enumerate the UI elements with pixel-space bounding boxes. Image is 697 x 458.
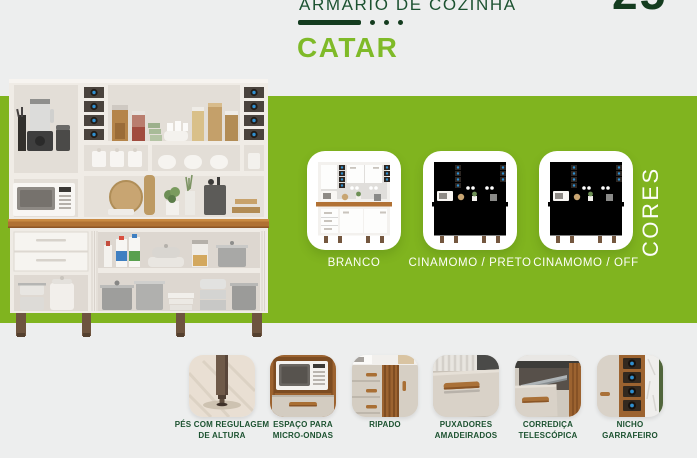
feature-thumbnail-ripado (352, 355, 418, 417)
feature-thumbnail-corredica (515, 355, 581, 417)
wood-countertop (8, 219, 269, 228)
cores-vertical-label: CORES (638, 165, 664, 257)
divider-dot (384, 20, 389, 25)
variant-photo (314, 158, 394, 244)
feature-thumbnail-pes-regulagem (189, 355, 255, 417)
color-variant-card-cinamomo-preto (423, 151, 517, 250)
catalog-page: ARMÁRIO DE COZINHA CATAR 25 (0, 0, 697, 458)
variant-photo (430, 158, 510, 244)
variant-label: CINAMOMO / OFF (511, 257, 661, 269)
drawers (14, 232, 88, 271)
divider-dot (370, 20, 375, 25)
feature-thumbnail-micro-ondas (270, 355, 336, 417)
page-number: 25 (612, 0, 667, 20)
divider-bar (298, 20, 361, 25)
cabinet-legs (16, 313, 262, 337)
feature-thumbnail-nicho (597, 355, 663, 417)
microwave-space-photo (270, 355, 336, 417)
microwave-icon (13, 183, 75, 216)
product-name: CATAR (297, 32, 398, 64)
adjustable-feet-photo (189, 355, 255, 417)
telescopic-slide-photo (515, 355, 581, 417)
wooden-handles-photo (433, 355, 499, 417)
hero-product-photo (8, 79, 269, 341)
brand-divider (298, 20, 408, 25)
variant-photo (546, 158, 626, 244)
category-title: ARMÁRIO DE COZINHA (299, 0, 517, 15)
slatted-panel-photo (352, 355, 418, 417)
divider-dot (398, 20, 403, 25)
feature-thumbnail-puxadores (433, 355, 499, 417)
color-variant-card-branco (307, 151, 401, 250)
color-variant-card-cinamomo-off (539, 151, 633, 250)
feature-caption: NICHO GARRAFEIRO (572, 420, 688, 442)
bottle-rack-photo (597, 355, 663, 417)
